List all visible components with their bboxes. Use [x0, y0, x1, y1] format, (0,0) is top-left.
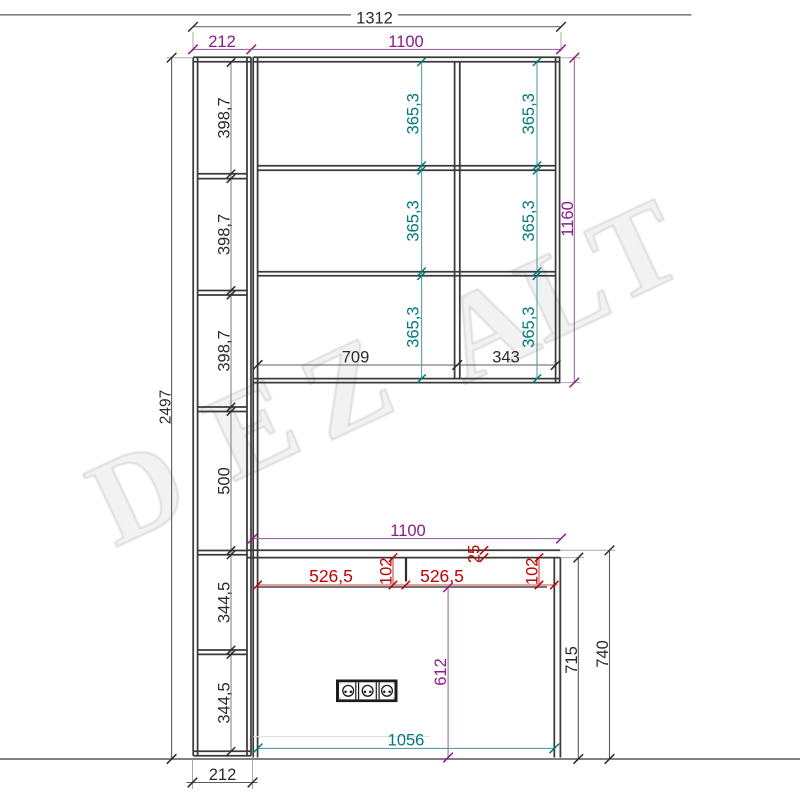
svg-text:365,3: 365,3 [405, 93, 423, 134]
svg-text:365,3: 365,3 [405, 307, 423, 348]
svg-text:1056: 1056 [388, 732, 425, 750]
svg-text:365,3: 365,3 [405, 200, 423, 241]
svg-text:526,5: 526,5 [420, 566, 464, 586]
svg-text:344,5: 344,5 [216, 682, 234, 723]
svg-text:1312: 1312 [356, 10, 393, 28]
svg-text:500: 500 [216, 467, 234, 495]
svg-text:102: 102 [378, 558, 396, 586]
svg-text:212: 212 [209, 766, 237, 784]
svg-text:25: 25 [466, 545, 484, 563]
svg-text:365,3: 365,3 [520, 200, 538, 241]
svg-text:212: 212 [208, 33, 236, 51]
svg-text:102: 102 [524, 558, 542, 586]
svg-text:1100: 1100 [388, 33, 423, 51]
svg-text:344,5: 344,5 [216, 582, 234, 623]
svg-text:398,7: 398,7 [216, 330, 234, 371]
svg-text:398,7: 398,7 [216, 214, 234, 255]
svg-text:365,3: 365,3 [520, 307, 538, 348]
svg-text:715: 715 [563, 646, 581, 674]
svg-text:1160: 1160 [559, 201, 577, 236]
svg-text:709: 709 [342, 349, 370, 367]
svg-text:343: 343 [492, 349, 520, 367]
svg-text:398,7: 398,7 [216, 97, 234, 138]
svg-text:365,3: 365,3 [520, 93, 538, 134]
svg-text:740: 740 [594, 640, 612, 668]
svg-text:2497: 2497 [157, 390, 174, 424]
svg-text:612: 612 [432, 658, 450, 686]
svg-text:526,5: 526,5 [309, 566, 353, 586]
svg-text:1100: 1100 [390, 522, 425, 540]
